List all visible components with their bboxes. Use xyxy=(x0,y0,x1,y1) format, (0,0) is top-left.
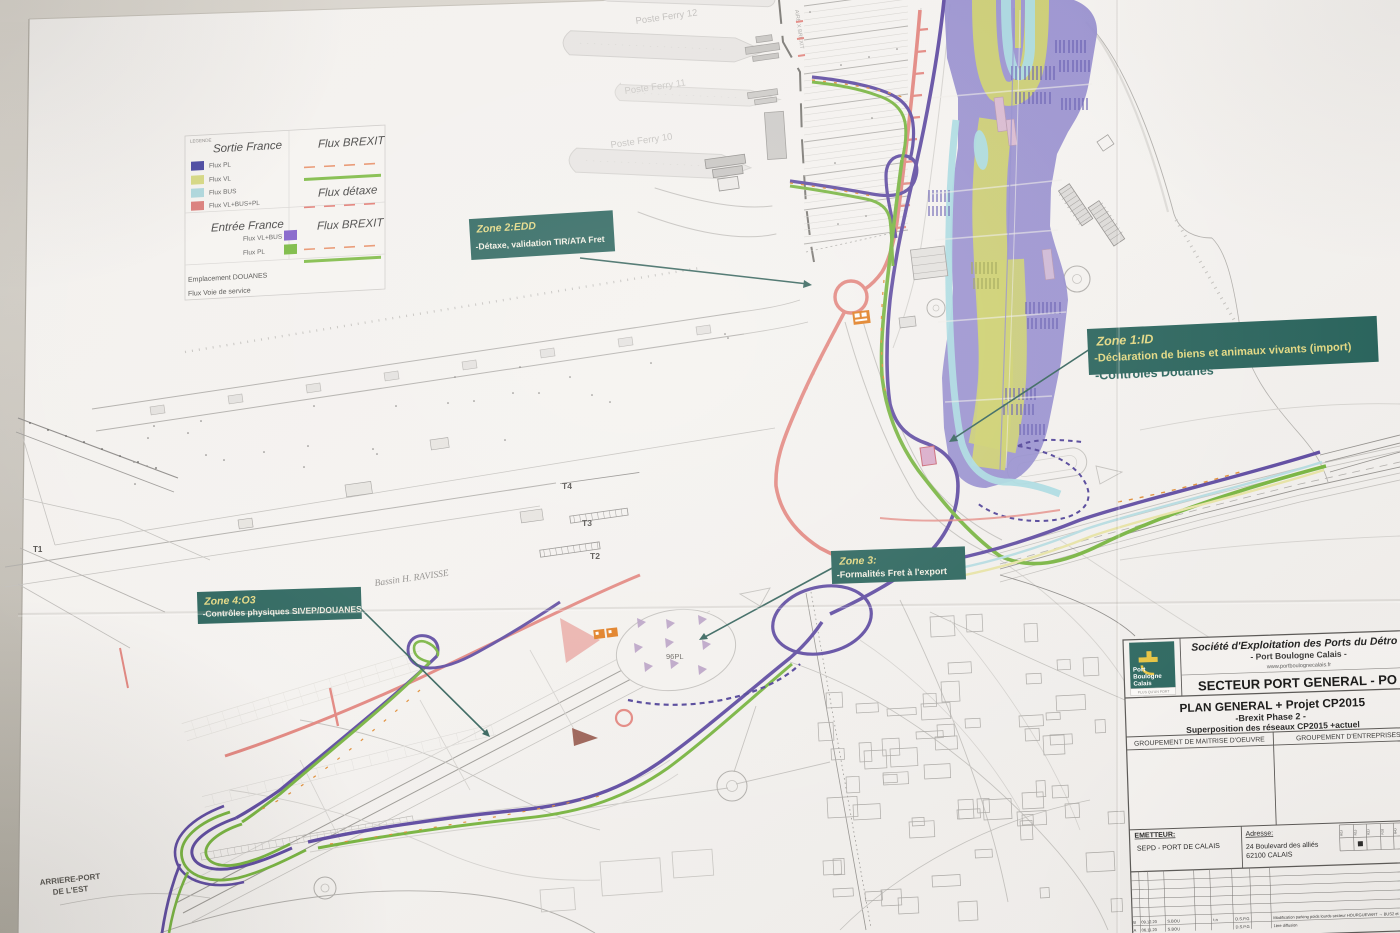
svg-text:06.11.20: 06.11.20 xyxy=(1142,927,1158,933)
svg-text:Calais: Calais xyxy=(1133,680,1152,688)
svg-text:Zone 4:O3: Zone 4:O3 xyxy=(203,594,256,608)
svg-text:S.BOU: S.BOU xyxy=(1167,918,1180,923)
svg-text:T2: T2 xyxy=(590,551,600,561)
svg-text:Flux PL: Flux PL xyxy=(209,161,231,169)
svg-text:EMETTEUR:: EMETTEUR: xyxy=(1134,831,1175,839)
svg-text:T4: T4 xyxy=(562,481,572,491)
svg-text:Zone 1:ID: Zone 1:ID xyxy=(1095,332,1154,349)
svg-text:B: B xyxy=(1133,920,1136,925)
svg-text:R3J: R3J xyxy=(1380,828,1384,834)
svg-text:Zone 3:: Zone 3: xyxy=(838,554,877,567)
svg-text:09.12.20: 09.12.20 xyxy=(1141,919,1158,925)
svg-text:R2J: R2J xyxy=(1366,829,1370,835)
svg-text:T1: T1 xyxy=(33,545,43,554)
svg-text:R1J: R1J xyxy=(1353,829,1357,835)
svg-text:96PL: 96PL xyxy=(666,652,684,661)
svg-text:Flux VL: Flux VL xyxy=(209,175,231,183)
svg-text:T3: T3 xyxy=(582,518,592,528)
svg-text:Flux PL: Flux PL xyxy=(243,249,265,257)
svg-text:Adresse:: Adresse: xyxy=(1245,830,1273,838)
svg-text:D.S.P.G: D.S.P.G xyxy=(1235,924,1249,929)
svg-text:1ère diffusion: 1ère diffusion xyxy=(1273,922,1297,928)
svg-text:R4J: R4J xyxy=(1393,828,1397,834)
svg-text:R0J: R0J xyxy=(1339,830,1343,836)
svg-text:D.S.P.G: D.S.P.G xyxy=(1235,916,1249,921)
svg-text:t.n: t.n xyxy=(1213,917,1218,922)
svg-text:A: A xyxy=(1134,928,1137,933)
svg-text:S.BOU: S.BOU xyxy=(1168,926,1181,931)
